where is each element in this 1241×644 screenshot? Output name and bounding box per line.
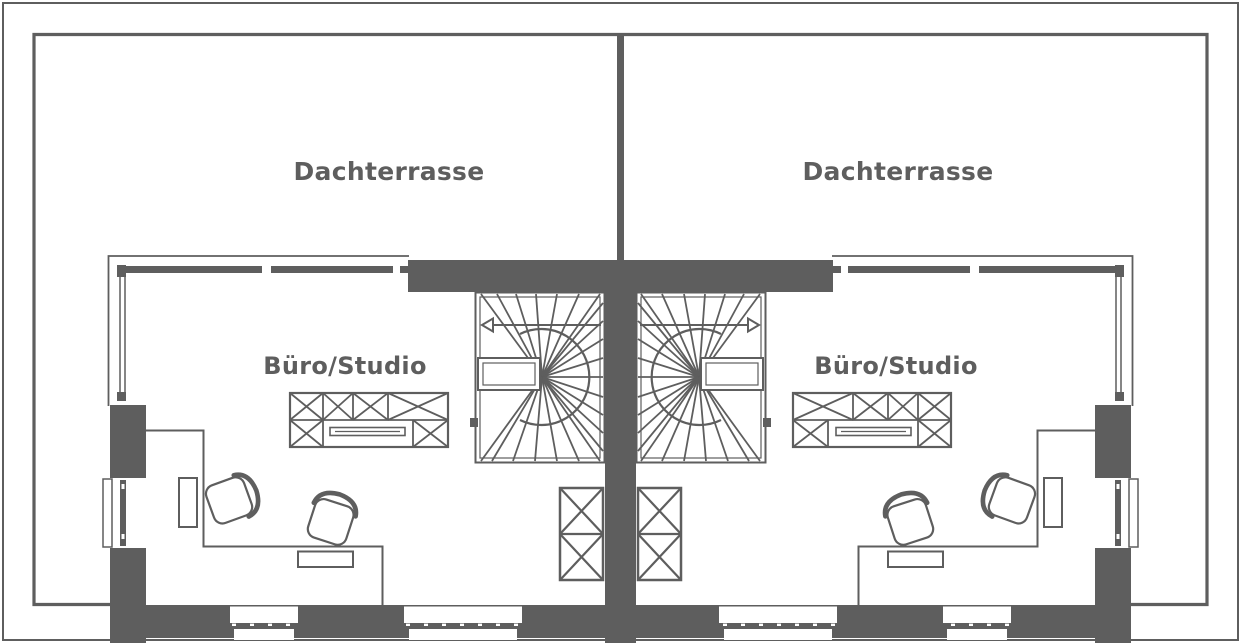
sideboard xyxy=(290,393,448,447)
unit-right-geometry xyxy=(621,3,1239,643)
studio-exterior-line xyxy=(109,256,410,406)
floor-plan-drawing xyxy=(0,0,1241,644)
studio-label-right: Büro/Studio xyxy=(786,352,1006,380)
terrace-glazing xyxy=(117,265,411,401)
terrace-label-right: Dachterrasse xyxy=(788,157,1008,186)
desk-keyboard xyxy=(298,552,353,568)
terrace-label-left: Dachterrasse xyxy=(279,157,499,186)
stair-entry-marker xyxy=(470,418,478,427)
office-chair xyxy=(203,470,264,528)
shaft-block xyxy=(560,488,603,580)
studio-label-left: Büro/Studio xyxy=(235,352,455,380)
west-window xyxy=(103,478,146,548)
unit-left-geometry xyxy=(3,3,621,643)
south-wall xyxy=(110,605,621,638)
staircase xyxy=(470,293,605,463)
floor-plan: Dachterrasse Dachterrasse Büro/Studio Bü… xyxy=(0,0,1241,644)
desk-monitor xyxy=(179,478,197,527)
office-chair xyxy=(304,488,361,548)
roof-edge-line xyxy=(3,3,621,640)
